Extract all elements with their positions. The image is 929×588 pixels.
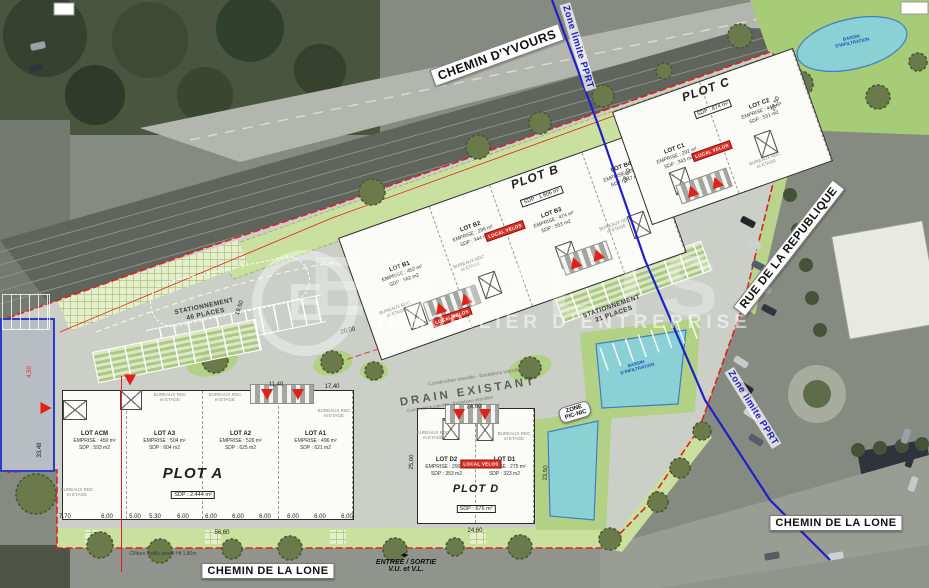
lot-name: LOT A1	[305, 431, 326, 437]
adjacent-parcel-box	[0, 318, 55, 472]
tree-icon	[866, 85, 890, 109]
tree-icon	[728, 24, 752, 48]
red-arrow-icon	[292, 389, 304, 400]
plot-d-title: PLOT D	[453, 483, 499, 495]
tree-icon	[446, 538, 464, 556]
dim-label: 23,50	[542, 465, 549, 480]
dim-label: 6.00	[259, 514, 271, 520]
lot-emprise: EMPRISE : 504 m²	[143, 438, 185, 444]
lot-sdp: SDP : 593 m2	[79, 445, 110, 451]
tree-icon	[508, 535, 532, 559]
red-arrow-icon	[41, 402, 52, 414]
dim-label: 24,60	[467, 528, 482, 534]
property-limit-red-line	[121, 376, 122, 572]
bureaux-note: BUREAUX RDC et ETAGE	[154, 393, 187, 403]
cloture-note: Clôture treillis soudé Ht 1,80m	[130, 551, 197, 557]
tree-icon	[222, 539, 242, 559]
tree-icon	[529, 112, 551, 134]
red-arrow-icon	[453, 409, 465, 420]
dim-label: 56,60	[214, 530, 229, 536]
bureaux-note: BUREAUX RDC et ETAGE	[209, 393, 242, 403]
red-tag-plot-d: LOCAL VELOS	[460, 460, 501, 469]
red-arrow-icon	[479, 409, 491, 420]
bureaux-note: BUREAUX RDC et ETAGE	[318, 409, 351, 419]
parking-stalls-edge	[2, 294, 50, 330]
tree-icon	[321, 351, 343, 373]
stair-icon	[63, 400, 87, 420]
tree-icon	[359, 179, 385, 205]
dim-label: 7.70	[59, 514, 71, 520]
dim-label: 11,40	[269, 382, 284, 388]
dim-label: 6.00	[314, 514, 326, 520]
lot-name: LOT D2	[436, 457, 457, 463]
red-arrow-icon	[567, 255, 582, 269]
dim-label: 6.00	[205, 514, 217, 520]
dim-label: 6.00	[232, 514, 244, 520]
plot-d-sdp: SDP : 676 m²	[457, 505, 496, 513]
tree-icon	[87, 532, 113, 558]
tree-icon	[648, 492, 668, 512]
bureaux-note: BUREAUX RDC et ETAGE	[417, 431, 450, 441]
plot-a-building: LOT ACM EMPRISE : 450 m² SDP : 593 m2 LO…	[62, 390, 354, 520]
entree-sortie-label: ENTREE / SORTIE V.U. et V.L.	[376, 559, 436, 573]
dim-label: 33,48	[37, 442, 43, 457]
red-arrow-icon	[124, 375, 136, 386]
stair-icon	[120, 390, 142, 410]
tree-icon	[693, 422, 711, 440]
tree-icon	[670, 458, 690, 478]
dim-label: 6.00	[101, 514, 113, 520]
dim-label: 6.00	[177, 514, 189, 520]
dim-label: 6.00	[287, 514, 299, 520]
entree-sortie-arrows-icon: ◂▸	[400, 550, 407, 561]
red-arrow-icon	[457, 291, 472, 305]
bureaux-note: BUREAUX RDC et ETAGE	[498, 432, 531, 442]
lot-sdp: SDP : 353 m2	[431, 471, 462, 477]
tree-icon	[909, 53, 927, 71]
plot-a-title: PLOT A	[163, 465, 223, 482]
lot-emprise: EMPRISE : 526 m²	[219, 438, 261, 444]
red-arrow-icon	[432, 300, 447, 314]
dim-label: 25,00	[409, 454, 416, 469]
dim-label: 5.30	[149, 514, 161, 520]
lot-name: LOT A2	[230, 431, 251, 437]
lot-emprise: EMPRISE : 450 m²	[73, 438, 115, 444]
dim-label: 6.00	[341, 514, 353, 520]
tree-icon	[278, 536, 302, 560]
dim-label: 4,50	[27, 366, 33, 378]
dim-label: 24,60	[466, 404, 481, 411]
red-arrow-icon	[261, 389, 273, 400]
lot-sdp: SDP : 625 m2	[225, 445, 256, 451]
site-plan-screenshot: LOT ACM EMPRISE : 450 m² SDP : 593 m2 LO…	[0, 0, 929, 588]
dim-label: 17,40	[324, 384, 339, 390]
tree-icon	[656, 63, 672, 79]
lot-name: LOT ACM	[81, 431, 108, 437]
red-arrow-icon	[709, 174, 724, 188]
lot-sdp: SDP : 604 m2	[149, 445, 180, 451]
bureaux-note: BUREAUX RDC et ETAGE	[61, 488, 94, 498]
lot-sdp: SDP : 621 m2	[300, 445, 331, 451]
lot-sdp: SDP : 323 m2	[489, 471, 520, 477]
street-label-chemin-lone-right: CHEMIN DE LA LONE	[769, 515, 902, 531]
dim-label: 5.00	[129, 514, 141, 520]
lot-name: LOT A3	[154, 431, 175, 437]
tree-icon	[599, 528, 621, 550]
tree-icon	[365, 362, 383, 380]
plot-a-sdp: SDP : 2.444 m²	[171, 491, 215, 499]
red-arrow-icon	[590, 247, 605, 261]
lot-emprise: EMPRISE : 496 m²	[294, 438, 336, 444]
street-label-chemin-lone-bottom: CHEMIN DE LA LONE	[201, 563, 334, 579]
tree-icon	[466, 135, 490, 159]
tree-icon	[16, 474, 56, 514]
red-arrow-icon	[684, 183, 699, 197]
